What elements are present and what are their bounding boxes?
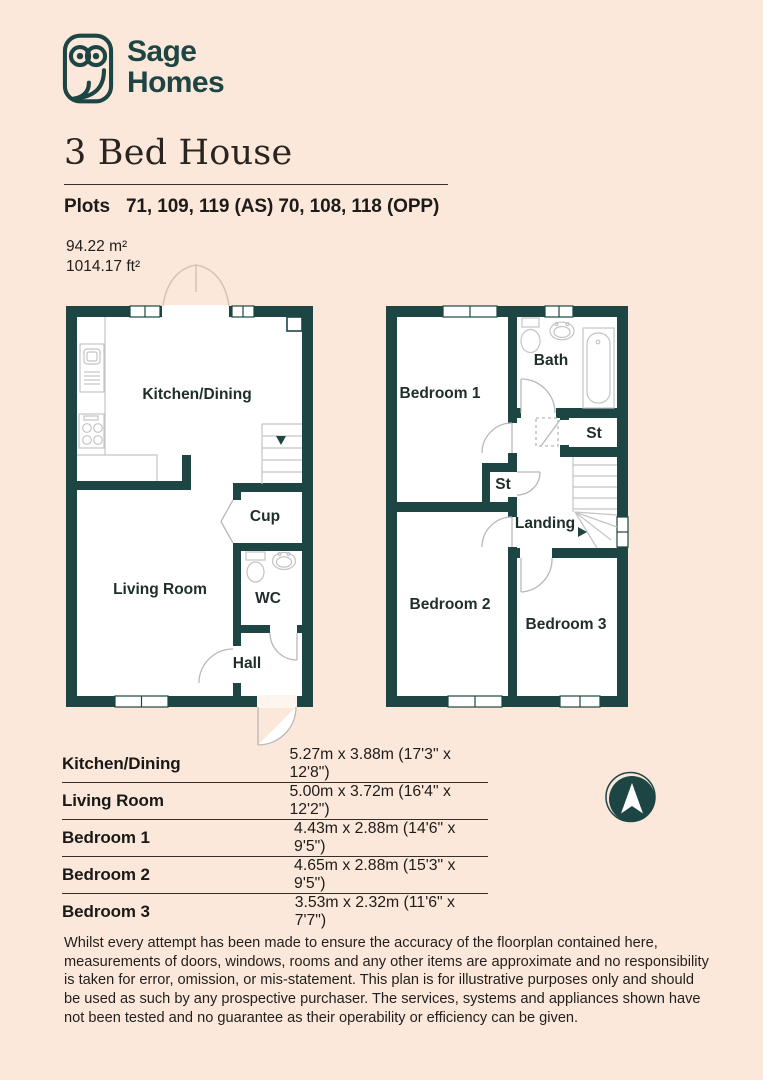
- room-label-kitchen-dining: Kitchen/Dining: [142, 386, 251, 403]
- page-title: 3 Bed House: [64, 133, 292, 173]
- first-doors: [482, 379, 560, 592]
- room-dimensions: 3.53m x 2.32m (11'6" x 7'7"): [295, 894, 488, 930]
- room-name: Living Room: [62, 791, 289, 811]
- bath-fixtures: [521, 318, 614, 408]
- table-row: Kitchen/Dining 5.27m x 3.88m (17'3" x 12…: [62, 746, 488, 783]
- room-name: Bedroom 1: [62, 828, 294, 848]
- kitchen-sink-icon: [80, 344, 104, 392]
- ground-windows: [115, 306, 254, 707]
- area-m2: 94.22 m²: [66, 237, 140, 257]
- room-label-bedroom1: Bedroom 1: [400, 385, 481, 402]
- brand-line1: Sage: [127, 36, 224, 67]
- floorplan-page: { "page": { "background": "#fce8da", "ac…: [0, 0, 763, 1080]
- plots-line: Plots 71, 109, 119 (AS) 70, 108, 118 (OP…: [64, 196, 439, 218]
- room-dimensions: 4.65m x 2.88m (15'3" x 9'5"): [294, 857, 488, 893]
- room-label-bedroom3: Bedroom 3: [526, 616, 607, 633]
- area-ft2: 1014.17 ft²: [66, 257, 140, 277]
- brand-line2: Homes: [127, 67, 224, 98]
- owl-icon: [62, 33, 114, 104]
- north-compass-icon: [606, 773, 655, 823]
- room-label-bath: Bath: [534, 352, 568, 369]
- room-dimensions: 4.43m x 2.88m (14'6" x 9'5"): [294, 820, 488, 856]
- disclaimer-text: Whilst every attempt has been made to en…: [64, 934, 712, 1028]
- ground-stairs-icon: [262, 424, 302, 484]
- room-label-st-lower: St: [495, 476, 511, 493]
- room-label-bedroom2: Bedroom 2: [410, 596, 491, 613]
- room-name: Bedroom 3: [62, 902, 295, 922]
- table-row: Bedroom 2 4.65m x 2.88m (15'3" x 9'5"): [62, 857, 488, 894]
- table-row: Bedroom 3 3.53m x 2.32m (11'6" x 7'7"): [62, 894, 488, 930]
- room-dimensions: 5.00m x 3.72m (16'4" x 12'2"): [289, 783, 488, 819]
- room-label-landing: Landing: [515, 515, 575, 532]
- title-divider: [64, 184, 448, 185]
- first-stairs-icon: [573, 457, 617, 548]
- wc-fixtures: [246, 552, 296, 582]
- room-name: Kitchen/Dining: [62, 754, 289, 774]
- room-label-wc: WC: [255, 590, 281, 607]
- brand-wordmark: Sage Homes: [127, 36, 224, 98]
- kitchen-counter: [77, 317, 157, 481]
- first-floor-plan: Bedroom 1 Bath St St Landing Bedroom 2 B…: [386, 306, 628, 707]
- corner-cupboard: [287, 317, 302, 331]
- room-name: Bedroom 2: [62, 865, 294, 885]
- ground-doors: [199, 500, 297, 683]
- logo: Sage Homes: [62, 33, 224, 104]
- hob-icon: [79, 414, 104, 448]
- dimensions-table: Kitchen/Dining 5.27m x 3.88m (17'3" x 12…: [62, 746, 488, 930]
- plots-value: 71, 109, 119 (AS) 70, 108, 118 (OPP): [126, 196, 439, 218]
- plots-label: Plots: [64, 196, 110, 218]
- area-block: 94.22 m² 1014.17 ft²: [66, 237, 140, 276]
- room-label-st-upper: St: [586, 425, 602, 442]
- table-row: Bedroom 1 4.43m x 2.88m (14'6" x 9'5"): [62, 820, 488, 857]
- room-dimensions: 5.27m x 3.88m (17'3" x 12'8"): [289, 746, 488, 782]
- ground-floor-plan: Kitchen/Dining Living Room Cup WC Hall: [66, 265, 313, 745]
- front-door-icon: [257, 695, 297, 745]
- french-doors-icon: [162, 265, 229, 318]
- room-label-hall: Hall: [233, 655, 261, 672]
- first-windows: [443, 306, 628, 707]
- table-row: Living Room 5.00m x 3.72m (16'4" x 12'2"…: [62, 783, 488, 820]
- room-label-cup: Cup: [250, 508, 280, 525]
- room-label-living-room: Living Room: [113, 581, 207, 598]
